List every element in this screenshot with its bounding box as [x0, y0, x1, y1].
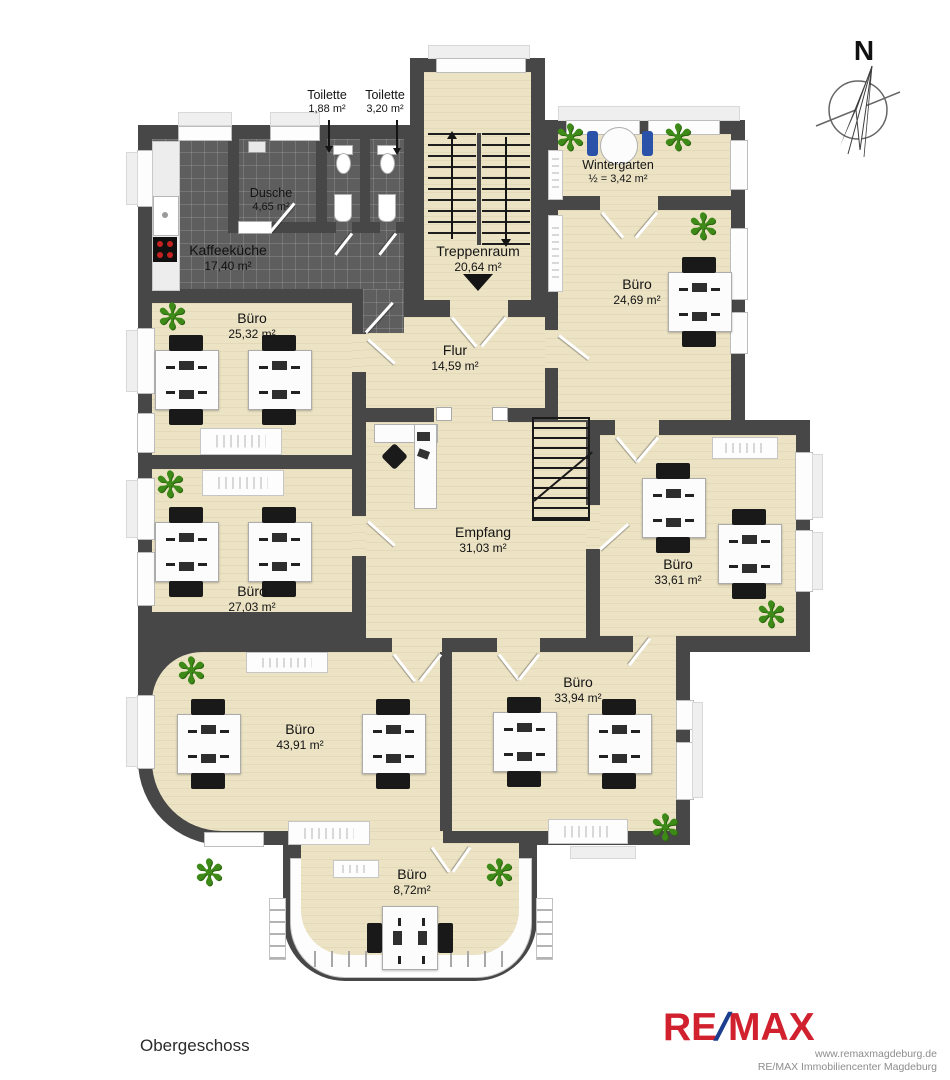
- logo-re: RE: [663, 1006, 717, 1049]
- room-area: 33,94 m²: [554, 691, 601, 706]
- room-label-dusche: Dusche 4,65 m²: [250, 186, 292, 215]
- window-sill: [812, 454, 823, 518]
- room-area: 31,03 m²: [455, 541, 511, 556]
- radiator: [200, 428, 282, 455]
- radiator: [288, 821, 370, 845]
- window: [436, 58, 526, 73]
- toilet-icon: [336, 153, 351, 174]
- room-label-toilette-large: Toilette 3,20 m²: [365, 88, 405, 117]
- toilet-icon: [380, 153, 395, 174]
- room-area: ½ = 3,42 m²: [582, 173, 654, 186]
- room-area: 27,03 m²: [228, 600, 275, 615]
- label-arrow-line: [396, 120, 398, 149]
- door-opening: [450, 300, 508, 318]
- room-label-buero-33-61: Büro 33,61 m²: [654, 556, 701, 588]
- svg-text:N: N: [854, 35, 874, 66]
- desk-group: [718, 524, 782, 584]
- room-label-kaffeekueche: Kaffeeküche 17,40 m²: [189, 242, 267, 274]
- desk-equipment: [517, 723, 532, 732]
- radiator: [333, 860, 379, 878]
- window: [795, 530, 813, 592]
- room-label-buero-8-72: Büro 8,72m²: [393, 866, 430, 898]
- window-sill: [126, 152, 138, 205]
- door-leaf: [436, 407, 452, 421]
- room-area: 1,88 m²: [307, 103, 347, 116]
- desk-group: [493, 712, 557, 772]
- room-name: Büro: [393, 866, 430, 883]
- window-sill: [126, 697, 138, 767]
- door-leaf: [492, 407, 508, 421]
- stairs-arrow-line: [505, 137, 507, 239]
- door-leaf: [238, 221, 272, 234]
- room-label-buero-27-03: Büro 27,03 m²: [228, 583, 275, 615]
- label-arrow-icon: [393, 148, 401, 155]
- wall: [228, 139, 239, 233]
- wall: [316, 139, 327, 233]
- logo-max: MAX: [728, 1006, 815, 1049]
- wall: [396, 222, 404, 233]
- window: [269, 898, 286, 960]
- desk-group: [588, 714, 652, 774]
- door-opening: [615, 420, 659, 435]
- room-area: 33,61 m²: [654, 573, 701, 588]
- label-arrow-icon: [325, 146, 333, 153]
- room-area: 14,59 m²: [431, 359, 478, 374]
- room-label-toilette-small: Toilette 1,88 m²: [307, 88, 347, 117]
- desk-equipment: [393, 931, 402, 945]
- room-area: 43,91 m²: [276, 738, 323, 753]
- desk-equipment: [272, 361, 287, 370]
- window-sill: [570, 846, 636, 859]
- room-name: Büro: [276, 721, 323, 738]
- window-sill: [428, 45, 530, 59]
- window: [137, 552, 155, 606]
- desk-group: [155, 522, 219, 582]
- plant-icon: ✻: [194, 856, 224, 892]
- room-label-buero-33-94: Büro 33,94 m²: [554, 674, 601, 706]
- stairs-arrow-up-icon: [447, 131, 457, 139]
- room-area: 8,72m²: [393, 883, 430, 898]
- stove-burner: [157, 241, 163, 247]
- room-area: 20,64 m²: [436, 260, 520, 275]
- door-opening: [545, 330, 558, 368]
- window: [648, 120, 720, 135]
- window-sill: [126, 480, 138, 538]
- desk-equipment: [201, 725, 216, 734]
- stove: [153, 237, 177, 262]
- desk-equipment: [742, 535, 757, 544]
- washbasin-icon: [334, 194, 352, 222]
- window-sill: [692, 702, 703, 798]
- radiator: [712, 437, 778, 459]
- desk-group: [155, 350, 219, 410]
- desk-group: [382, 906, 438, 970]
- room-name: Büro: [228, 310, 275, 327]
- company-line: RE/MAX Immobiliencenter Magdeburg: [758, 1061, 937, 1073]
- radiator: [548, 215, 563, 292]
- chair: [587, 131, 598, 156]
- room-name: Flur: [431, 342, 478, 359]
- chair: [642, 131, 653, 156]
- room-label-buero-43-91: Büro 43,91 m²: [276, 721, 323, 753]
- room-label-buero-25-32: Büro 25,32 m²: [228, 310, 275, 342]
- radiator: [202, 470, 284, 496]
- window: [137, 413, 155, 453]
- radiator: [548, 819, 628, 844]
- door-opening: [352, 516, 366, 556]
- window: [137, 695, 155, 769]
- stairs-interior: [532, 417, 590, 521]
- window: [730, 312, 748, 354]
- room-name: Empfang: [455, 524, 511, 541]
- desk-equipment: [179, 533, 194, 542]
- window: [270, 126, 320, 141]
- room-area: 4,65 m²: [250, 201, 292, 214]
- washbasin-icon: [378, 194, 396, 222]
- faucet: [162, 212, 168, 218]
- door-opening: [352, 334, 366, 372]
- desk-equipment: [179, 361, 194, 370]
- window-sill: [812, 532, 823, 590]
- room-area: 25,32 m²: [228, 327, 275, 342]
- desk-equipment: [692, 283, 707, 292]
- room-area: 17,40 m²: [189, 259, 267, 274]
- wall: [352, 222, 380, 233]
- window: [178, 126, 232, 141]
- window: [204, 832, 264, 847]
- stairs-arrow-line: [451, 139, 453, 239]
- stairs-divider: [477, 133, 481, 245]
- door-opening: [497, 638, 540, 652]
- room-name: Kaffeeküche: [189, 242, 267, 259]
- desk-group: [248, 350, 312, 410]
- door-opening: [600, 196, 658, 210]
- floor-title: Obergeschoss: [140, 1036, 250, 1056]
- room-label-buero-24-69: Büro 24,69 m²: [613, 276, 660, 308]
- desk-group: [248, 522, 312, 582]
- desk-group: [668, 272, 732, 332]
- window: [137, 478, 155, 540]
- window: [137, 328, 155, 394]
- window: [536, 898, 553, 960]
- window: [730, 140, 748, 190]
- room-name: Toilette: [307, 88, 347, 103]
- room-name: Treppenraum: [436, 243, 520, 260]
- room-label-flur: Flur 14,59 m²: [431, 342, 478, 374]
- radiator: [548, 150, 563, 200]
- desk-group: [177, 714, 241, 774]
- desk-equipment: [666, 489, 681, 498]
- desk-equipment: [417, 432, 430, 441]
- wall: [316, 222, 336, 233]
- room-area: 3,20 m²: [365, 103, 405, 116]
- room-name: Büro: [554, 674, 601, 691]
- room-name: Wintergarten: [582, 158, 654, 173]
- desk-group: [362, 714, 426, 774]
- window: [730, 228, 748, 300]
- door-opening: [392, 638, 442, 652]
- room-label-treppenraum: Treppenraum 20,64 m²: [436, 243, 520, 275]
- room-label-empfang: Empfang 31,03 m²: [455, 524, 511, 556]
- entrance-arrow-icon: [463, 274, 493, 291]
- room-name: Büro: [613, 276, 660, 293]
- radiator: [246, 652, 328, 673]
- label-arrow-line: [328, 120, 330, 147]
- room-label-wintergarten: Wintergarten ½ = 3,42 m²: [582, 158, 654, 187]
- shower-head-icon: [248, 141, 266, 153]
- desk-equipment: [386, 725, 401, 734]
- remax-logo: RE/MAX: [663, 1008, 815, 1047]
- window: [795, 452, 813, 520]
- room-area: 24,69 m²: [613, 293, 660, 308]
- window-sill: [126, 330, 138, 392]
- desk-equipment: [272, 533, 287, 542]
- room-name: Büro: [228, 583, 275, 600]
- compass-icon: N: [812, 26, 912, 158]
- wall: [360, 139, 370, 233]
- room-name: Toilette: [365, 88, 405, 103]
- window-sill: [178, 112, 232, 126]
- desk-equipment: [612, 725, 627, 734]
- window-sill: [558, 106, 740, 121]
- room-name: Büro: [654, 556, 701, 573]
- website-url: www.remaxmagdeburg.de: [815, 1048, 937, 1060]
- floorplan-canvas: ✻ ✻ ✻ ✻ ✻ ✻ ✻ ✻ ✻ ✻ Toilette 1,88 m² Toi…: [0, 0, 950, 1080]
- room-name: Dusche: [250, 186, 292, 201]
- desk-group: [642, 478, 706, 538]
